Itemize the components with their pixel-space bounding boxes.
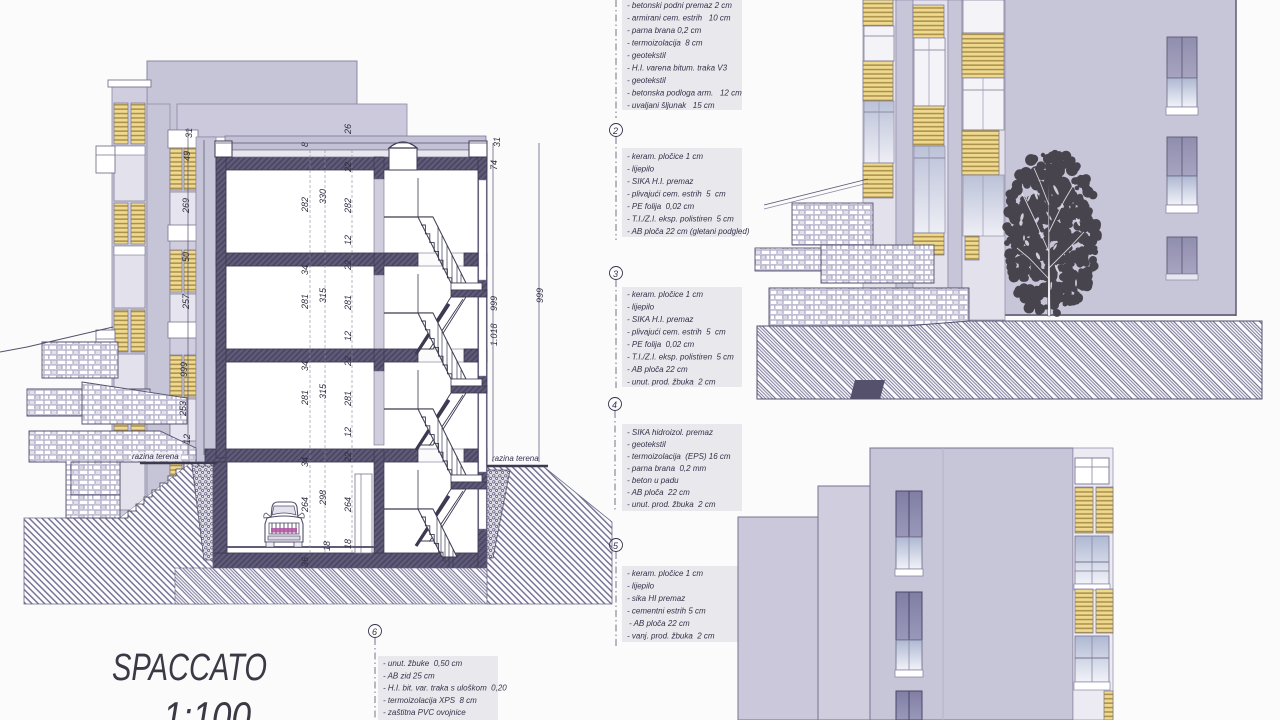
svg-text:- unut. prod. žbuka 2 cm: - unut. prod. žbuka 2 cm [627,500,716,509]
svg-text:298: 298 [318,490,328,506]
svg-text:36: 36 [300,557,310,567]
svg-text:2: 2 [612,126,618,136]
svg-text:- geotekstil: - geotekstil [627,76,666,85]
svg-text:12: 12 [182,434,192,444]
svg-text:- armirani cem. estrih 10 cm: - armirani cem. estrih 10 cm [627,14,731,23]
svg-text:50: 50 [181,252,191,262]
svg-text:- lijepilo: - lijepilo [627,582,655,591]
svg-text:- vanj. prod. žbuka 2 cm: - vanj. prod. žbuka 2 cm [627,632,715,641]
svg-text:999: 999 [489,296,499,311]
svg-text:6: 6 [372,627,377,637]
svg-text:1:100: 1:100 [163,693,252,720]
svg-text:34: 34 [300,457,310,467]
svg-text:- plivajući cem. estrih 5 cm: - plivajući cem. estrih 5 cm [627,190,726,199]
svg-text:- parna brana 0,2 cm: - parna brana 0,2 cm [627,26,702,35]
svg-text:razina terena: razina terena [132,452,179,461]
svg-text:- PE folija 0,02 cm: - PE folija 0,02 cm [627,340,694,349]
svg-text:34: 34 [300,265,310,275]
svg-text:- plivajući cem. estrih 5 cm: - plivajući cem. estrih 5 cm [627,328,726,337]
svg-text:- AB ploča 22 cm: - AB ploča 22 cm [627,488,690,497]
svg-text:74: 74 [489,160,499,170]
svg-text:- zaštitna PVC ovojnice: - zaštitna PVC ovojnice [383,708,466,717]
svg-text:315: 315 [318,287,328,303]
svg-text:- H.I. bit. var. traka s ulošk: - H.I. bit. var. traka s uloškom 0,20 [383,684,507,693]
svg-text:- lijepilo: - lijepilo [627,303,655,312]
svg-text:18: 18 [322,541,332,551]
svg-text:1.018: 1.018 [489,323,499,346]
svg-text:282: 282 [300,197,310,213]
svg-text:- PE folija 0,02 cm: - PE folija 0,02 cm [627,202,694,211]
svg-text:- T.I./Z.I. eksp. polistiren: - T.I./Z.I. eksp. polistiren 5 cm [627,215,734,224]
svg-text:- AB ploča 22 cm (gletani podg: - AB ploča 22 cm (gletani podgled) [627,227,750,236]
svg-text:- SIKA H.I. premaz: - SIKA H.I. premaz [627,177,693,186]
svg-text:- keram. pločice 1 cm: - keram. pločice 1 cm [627,152,703,161]
svg-text:- unut. prod. žbuka 2 cm: - unut. prod. žbuka 2 cm [627,378,716,387]
svg-text:- SIKA H.I. premaz: - SIKA H.I. premaz [627,315,693,324]
svg-text:49: 49 [182,151,192,161]
svg-text:31: 31 [492,137,502,147]
svg-text:- AB zid 25 cm: - AB zid 25 cm [383,672,435,681]
svg-text:- SIKA hidroizol. premaz: - SIKA hidroizol. premaz [627,428,713,437]
svg-text:281: 281 [300,390,310,406]
svg-text:22: 22 [343,162,353,173]
svg-text:- parna brana 0,2 mm: - parna brana 0,2 mm [627,464,706,473]
svg-text:- keram. pločice 1 cm: - keram. pločice 1 cm [627,569,703,578]
svg-text:- sika HI premaz: - sika HI premaz [627,594,685,603]
svg-text:12: 12 [343,427,353,437]
svg-text:281: 281 [343,391,353,407]
svg-text:26: 26 [343,124,353,135]
svg-text:22: 22 [343,452,353,463]
svg-text:- keram. pločice 1 cm: - keram. pločice 1 cm [627,290,703,299]
svg-text:- beton u padu: - beton u padu [627,476,679,485]
svg-text:- AB ploča 22 cm: - AB ploča 22 cm [627,365,688,374]
svg-text:282: 282 [343,198,353,214]
svg-text:22: 22 [343,260,353,271]
svg-text:- termoizolacija 8 cm: - termoizolacija 8 cm [627,39,703,48]
svg-text:- betonska podloga arm. 12 c: - betonska podloga arm. 12 cm [627,89,742,98]
svg-text:SPACCATO: SPACCATO [112,647,267,689]
svg-text:3: 3 [613,269,618,279]
svg-text:999: 999 [179,362,189,377]
svg-text:264: 264 [300,497,310,513]
svg-text:330: 330 [318,189,328,204]
svg-text:- termoizolacija (EPS) 16 cm: - termoizolacija (EPS) 16 cm [627,452,731,461]
svg-text:- betonski podni premaz 2 cm: - betonski podni premaz 2 cm [627,1,732,10]
svg-text:- AB ploča 22 cm: - AB ploča 22 cm [629,619,690,628]
svg-text:253: 253 [178,401,188,417]
svg-text:18: 18 [343,539,353,549]
svg-text:- lijepilo: - lijepilo [627,165,655,174]
svg-text:12: 12 [343,235,353,245]
svg-text:31: 31 [184,128,194,138]
svg-text:281: 281 [300,294,310,310]
svg-text:257: 257 [181,293,191,310]
svg-text:34: 34 [300,361,310,371]
svg-text:- geotekstil: - geotekstil [627,440,666,449]
svg-text:315: 315 [318,383,328,399]
svg-text:264: 264 [343,497,353,513]
svg-text:281: 281 [343,295,353,311]
svg-text:999: 999 [535,288,545,303]
svg-text:12: 12 [343,331,353,341]
svg-text:269: 269 [181,198,191,214]
svg-text:- cementni estrih 5 cm: - cementni estrih 5 cm [627,607,706,616]
svg-text:- T.I./Z.I. eksp. polistiren: - T.I./Z.I. eksp. polistiren 5 cm [627,353,734,362]
svg-text:- termoizolacija XPS 8 cm: - termoizolacija XPS 8 cm [383,696,477,705]
svg-text:- uvaljani šljunak 15 cm: - uvaljani šljunak 15 cm [627,101,715,110]
svg-text:razina terena: razina terena [492,454,539,463]
svg-text:- unut. žbuke 0,50 cm: - unut. žbuke 0,50 cm [383,659,462,668]
svg-text:- H.I. varena bitum. traka V3: - H.I. varena bitum. traka V3 [627,64,728,73]
svg-text:22: 22 [343,356,353,367]
svg-text:4: 4 [612,400,617,410]
svg-text:- geotekstil: - geotekstil [627,51,666,60]
